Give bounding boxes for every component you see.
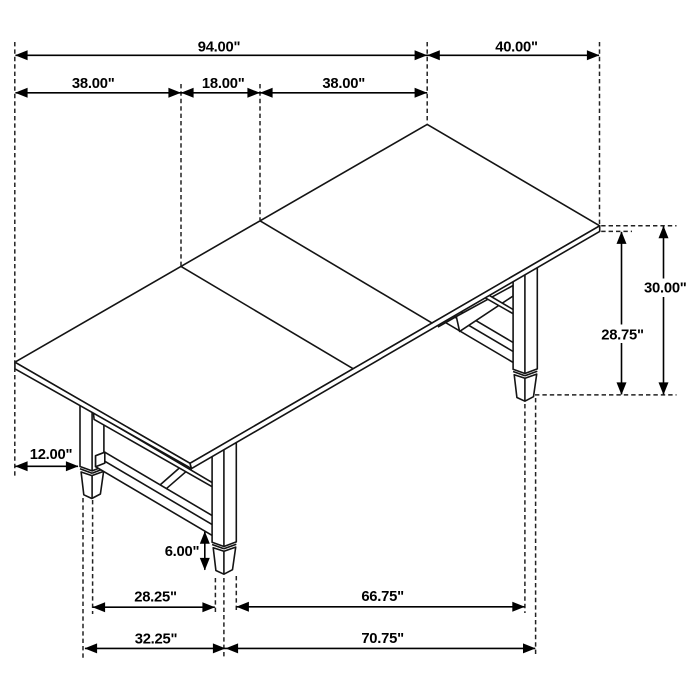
- svg-text:30.00": 30.00": [644, 281, 687, 297]
- svg-text:28.75": 28.75": [601, 328, 644, 344]
- svg-text:38.00": 38.00": [72, 76, 115, 92]
- svg-text:66.75": 66.75": [361, 589, 404, 605]
- svg-text:18.00": 18.00": [202, 76, 245, 92]
- svg-text:6.00": 6.00": [165, 544, 200, 560]
- svg-text:70.75": 70.75": [361, 631, 404, 647]
- svg-text:38.00": 38.00": [322, 76, 365, 92]
- svg-text:28.25": 28.25": [134, 590, 177, 606]
- svg-text:12.00": 12.00": [30, 447, 73, 463]
- svg-text:32.25": 32.25": [135, 632, 178, 648]
- svg-text:94.00": 94.00": [198, 40, 241, 56]
- svg-text:40.00": 40.00": [495, 40, 538, 56]
